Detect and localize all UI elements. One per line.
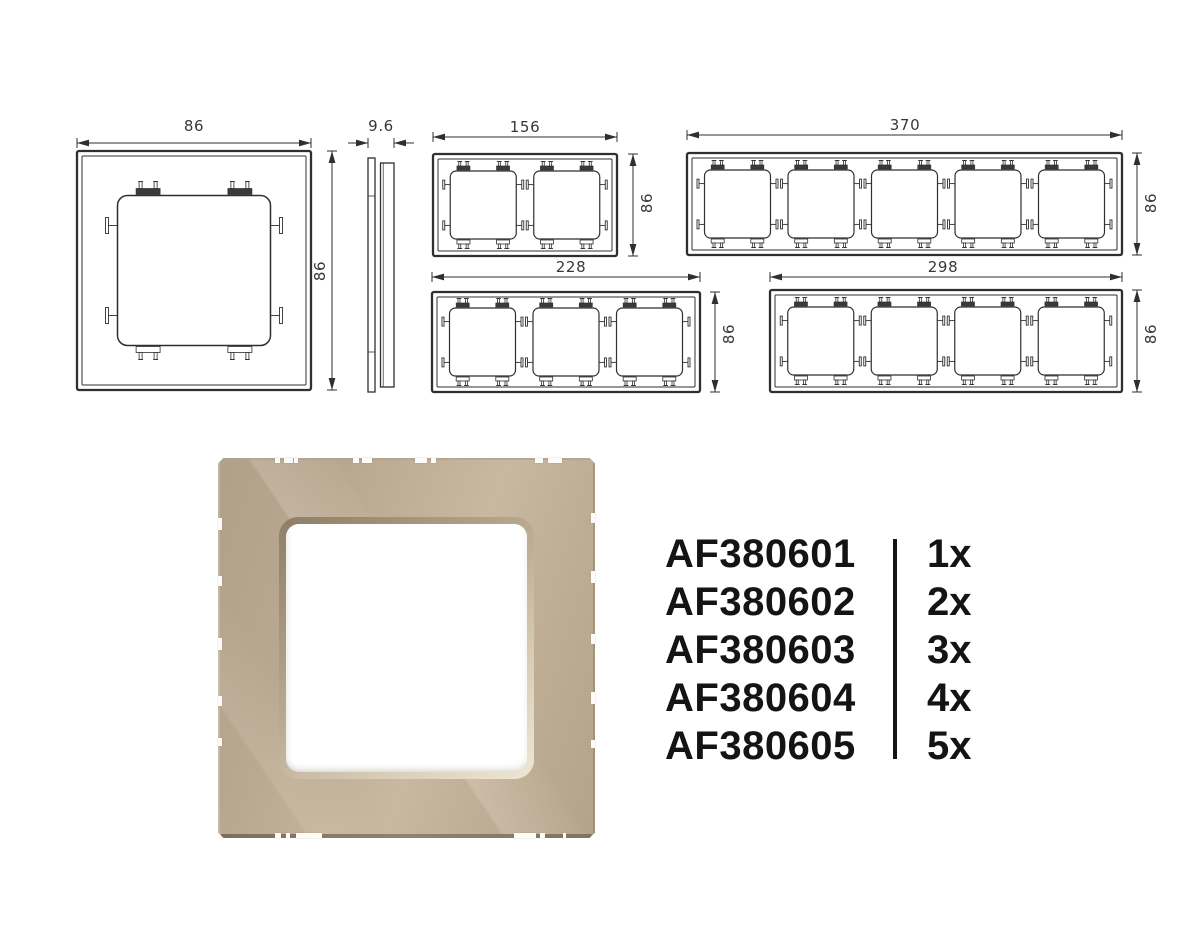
- order-list-divider: [893, 539, 897, 759]
- glass-notch: [275, 458, 280, 463]
- glass-notch: [218, 576, 222, 586]
- glass-notch: [591, 740, 595, 748]
- dim-label-1g-width: 86: [184, 117, 204, 135]
- glass-notch: [218, 638, 222, 650]
- glass-notch: [286, 833, 290, 838]
- dim-label-3g-width: 228: [556, 258, 586, 276]
- glass-notch: [548, 458, 562, 463]
- spec-sheet: 86 86 9.6 156 86 370 86 228 86 298 86 AF…: [0, 0, 1200, 933]
- dim-label-2g-width: 156: [510, 118, 540, 136]
- dim-label-5g-width: 370: [890, 116, 920, 134]
- glass-notch: [275, 833, 281, 838]
- product-render: [218, 458, 595, 838]
- glass-notch: [563, 833, 566, 838]
- glass-notch: [353, 458, 359, 463]
- product-code: AF380602: [665, 580, 895, 625]
- order-row: AF380603 3x: [665, 626, 1005, 674]
- dim-label-2g-height: 86: [638, 193, 656, 213]
- gang-count: 2x: [927, 580, 972, 625]
- order-list: AF380601 1x AF380602 2x AF380603 3x AF38…: [665, 530, 1005, 770]
- order-row: AF380601 1x: [665, 530, 1005, 578]
- dim-label-depth: 9.6: [368, 117, 394, 135]
- order-row: AF380604 4x: [665, 674, 1005, 722]
- order-row: AF380605 5x: [665, 722, 1005, 770]
- gang-count: 1x: [927, 532, 972, 577]
- product-code: AF380605: [665, 724, 895, 769]
- glass-notch: [591, 513, 595, 523]
- gang-count: 4x: [927, 676, 972, 721]
- glass-notch: [540, 833, 545, 838]
- technical-drawings-canvas: [0, 0, 1200, 933]
- dim-label-1g-height: 86: [311, 261, 329, 281]
- glass-notch: [218, 738, 222, 746]
- gang-count: 3x: [927, 628, 972, 673]
- glass-notch: [218, 518, 222, 530]
- dim-label-3g-height: 86: [720, 324, 738, 344]
- product-code: AF380601: [665, 532, 895, 577]
- opening-bevel-rim: [279, 517, 534, 779]
- glass-notch: [218, 696, 222, 706]
- glass-notch: [591, 571, 595, 583]
- glass-notch: [535, 458, 543, 463]
- glass-notch: [514, 833, 536, 838]
- glass-notch: [362, 458, 372, 463]
- glass-notch: [415, 458, 427, 463]
- glass-notch: [296, 833, 322, 838]
- glass-notch: [591, 692, 595, 704]
- dim-label-4g-width: 298: [928, 258, 958, 276]
- gang-count: 5x: [927, 724, 972, 769]
- frame-opening: [286, 524, 527, 772]
- glass-notch: [591, 634, 595, 644]
- dim-label-5g-height: 86: [1142, 193, 1160, 213]
- product-code: AF380603: [665, 628, 895, 673]
- glass-notch: [284, 458, 293, 463]
- glass-notch: [431, 458, 436, 463]
- dim-label-4g-height: 86: [1142, 324, 1160, 344]
- product-code: AF380604: [665, 676, 895, 721]
- order-row: AF380602 2x: [665, 578, 1005, 626]
- glass-notch: [294, 458, 298, 463]
